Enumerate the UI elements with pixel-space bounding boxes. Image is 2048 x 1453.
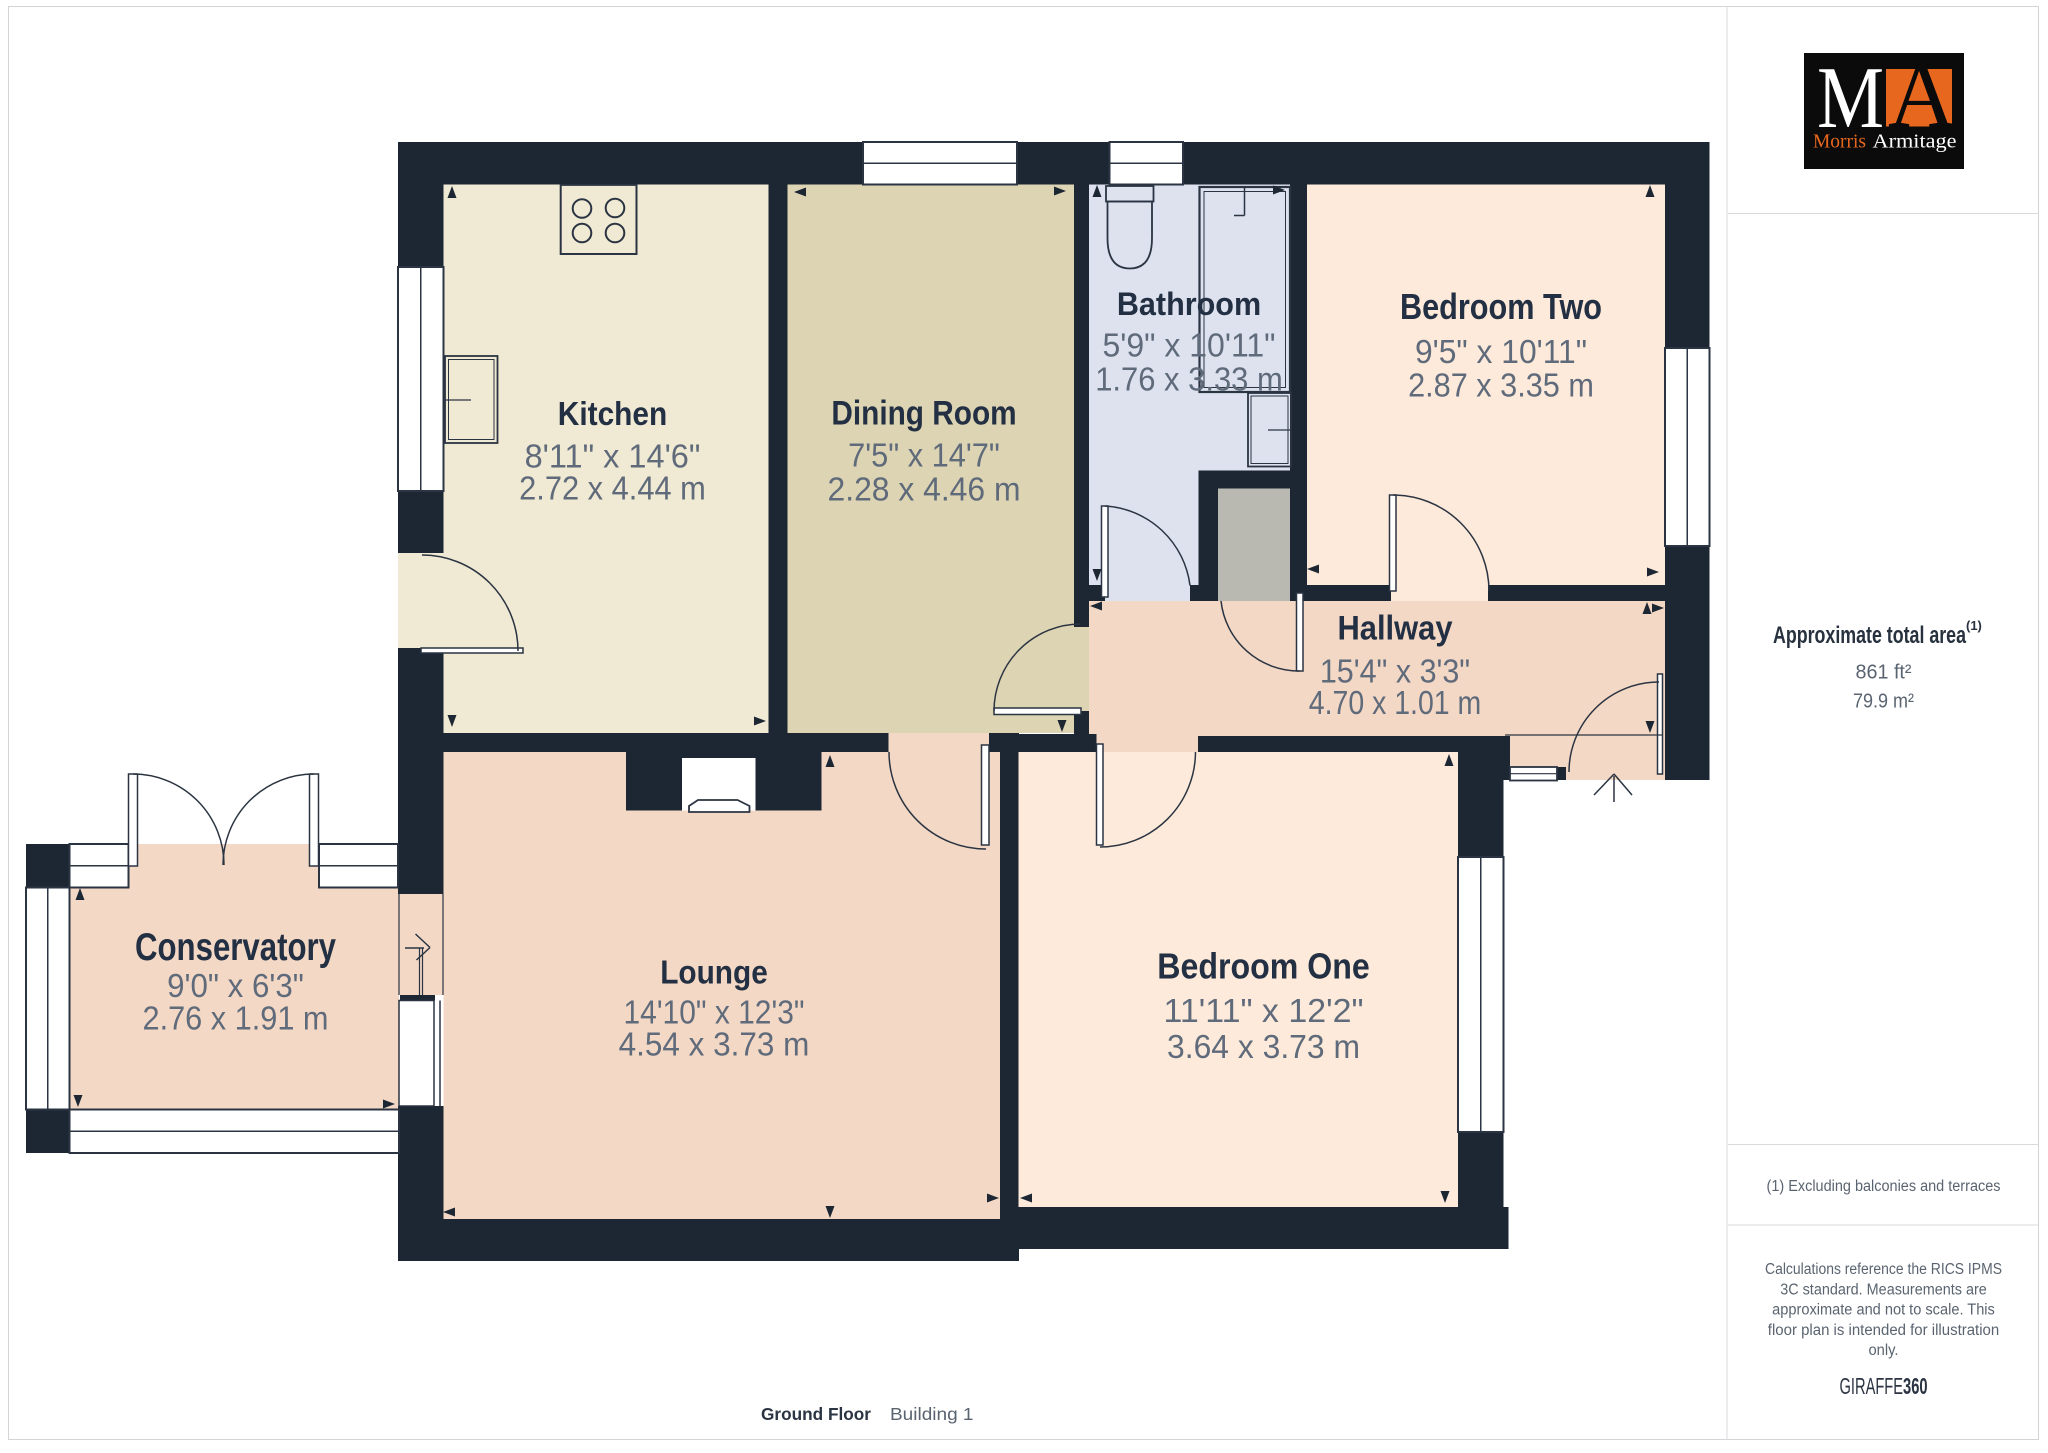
svg-text:Building 1: Building 1: [890, 1404, 974, 1424]
svg-text:7'5" x 14'7": 7'5" x 14'7": [848, 437, 1000, 474]
svg-text:5'9" x 10'11": 5'9" x 10'11": [1103, 327, 1276, 364]
svg-text:Hallway: Hallway: [1338, 610, 1453, 648]
svg-text:GIRAFFE360: GIRAFFE360: [1840, 1373, 1928, 1399]
svg-text:2.72 x 4.44 m: 2.72 x 4.44 m: [519, 470, 706, 507]
svg-text:4.70 x 1.01 m: 4.70 x 1.01 m: [1309, 685, 1482, 722]
svg-text:3.64 x 3.73 m: 3.64 x 3.73 m: [1167, 1029, 1360, 1066]
svg-text:approximate and not to scale.: approximate and not to scale. This: [1772, 1302, 1995, 1319]
svg-text:4.54 x 3.73 m: 4.54 x 3.73 m: [619, 1026, 810, 1063]
svg-text:861 ft²: 861 ft²: [1856, 662, 1912, 684]
svg-text:Calculations reference the RIC: Calculations reference the RICS IPMS: [1765, 1261, 2002, 1278]
svg-text:2.76 x 1.91 m: 2.76 x 1.91 m: [143, 1000, 329, 1037]
svg-text:Approximate total area: Approximate total area: [1773, 623, 1967, 649]
svg-text:Lounge: Lounge: [660, 955, 768, 992]
svg-text:Ground Floor: Ground Floor: [761, 1404, 871, 1424]
svg-text:2.87 x 3.35 m: 2.87 x 3.35 m: [1408, 367, 1594, 404]
svg-text:3C standard. Measurements are: 3C standard. Measurements are: [1780, 1281, 1987, 1298]
svg-text:Armitage: Armitage: [1873, 131, 1957, 153]
svg-text:1.76 x 3.33 m: 1.76 x 3.33 m: [1095, 361, 1283, 398]
svg-text:only.: only.: [1869, 1342, 1899, 1359]
svg-text:79.9 m²: 79.9 m²: [1853, 691, 1914, 713]
svg-text:(1): (1): [1966, 618, 1982, 633]
svg-text:9'5" x 10'11": 9'5" x 10'11": [1415, 334, 1587, 371]
svg-text:floor plan is intended for ill: floor plan is intended for illustration: [1768, 1322, 1999, 1339]
svg-text:11'11" x 12'2": 11'11" x 12'2": [1164, 993, 1364, 1030]
svg-text:(1) Excluding balconies and te: (1) Excluding balconies and terraces: [1767, 1178, 2001, 1195]
svg-text:Bedroom One: Bedroom One: [1157, 945, 1370, 986]
svg-text:Bedroom Two: Bedroom Two: [1400, 287, 1602, 327]
svg-text:Bathroom: Bathroom: [1117, 286, 1261, 322]
svg-text:Morris: Morris: [1813, 131, 1866, 153]
svg-text:Kitchen: Kitchen: [558, 396, 667, 433]
svg-text:9'0" x 6'3": 9'0" x 6'3": [167, 968, 304, 1005]
svg-text:2.28 x 4.46 m: 2.28 x 4.46 m: [828, 471, 1021, 508]
svg-text:Dining Room: Dining Room: [831, 394, 1016, 432]
svg-text:Conservatory: Conservatory: [135, 926, 336, 969]
